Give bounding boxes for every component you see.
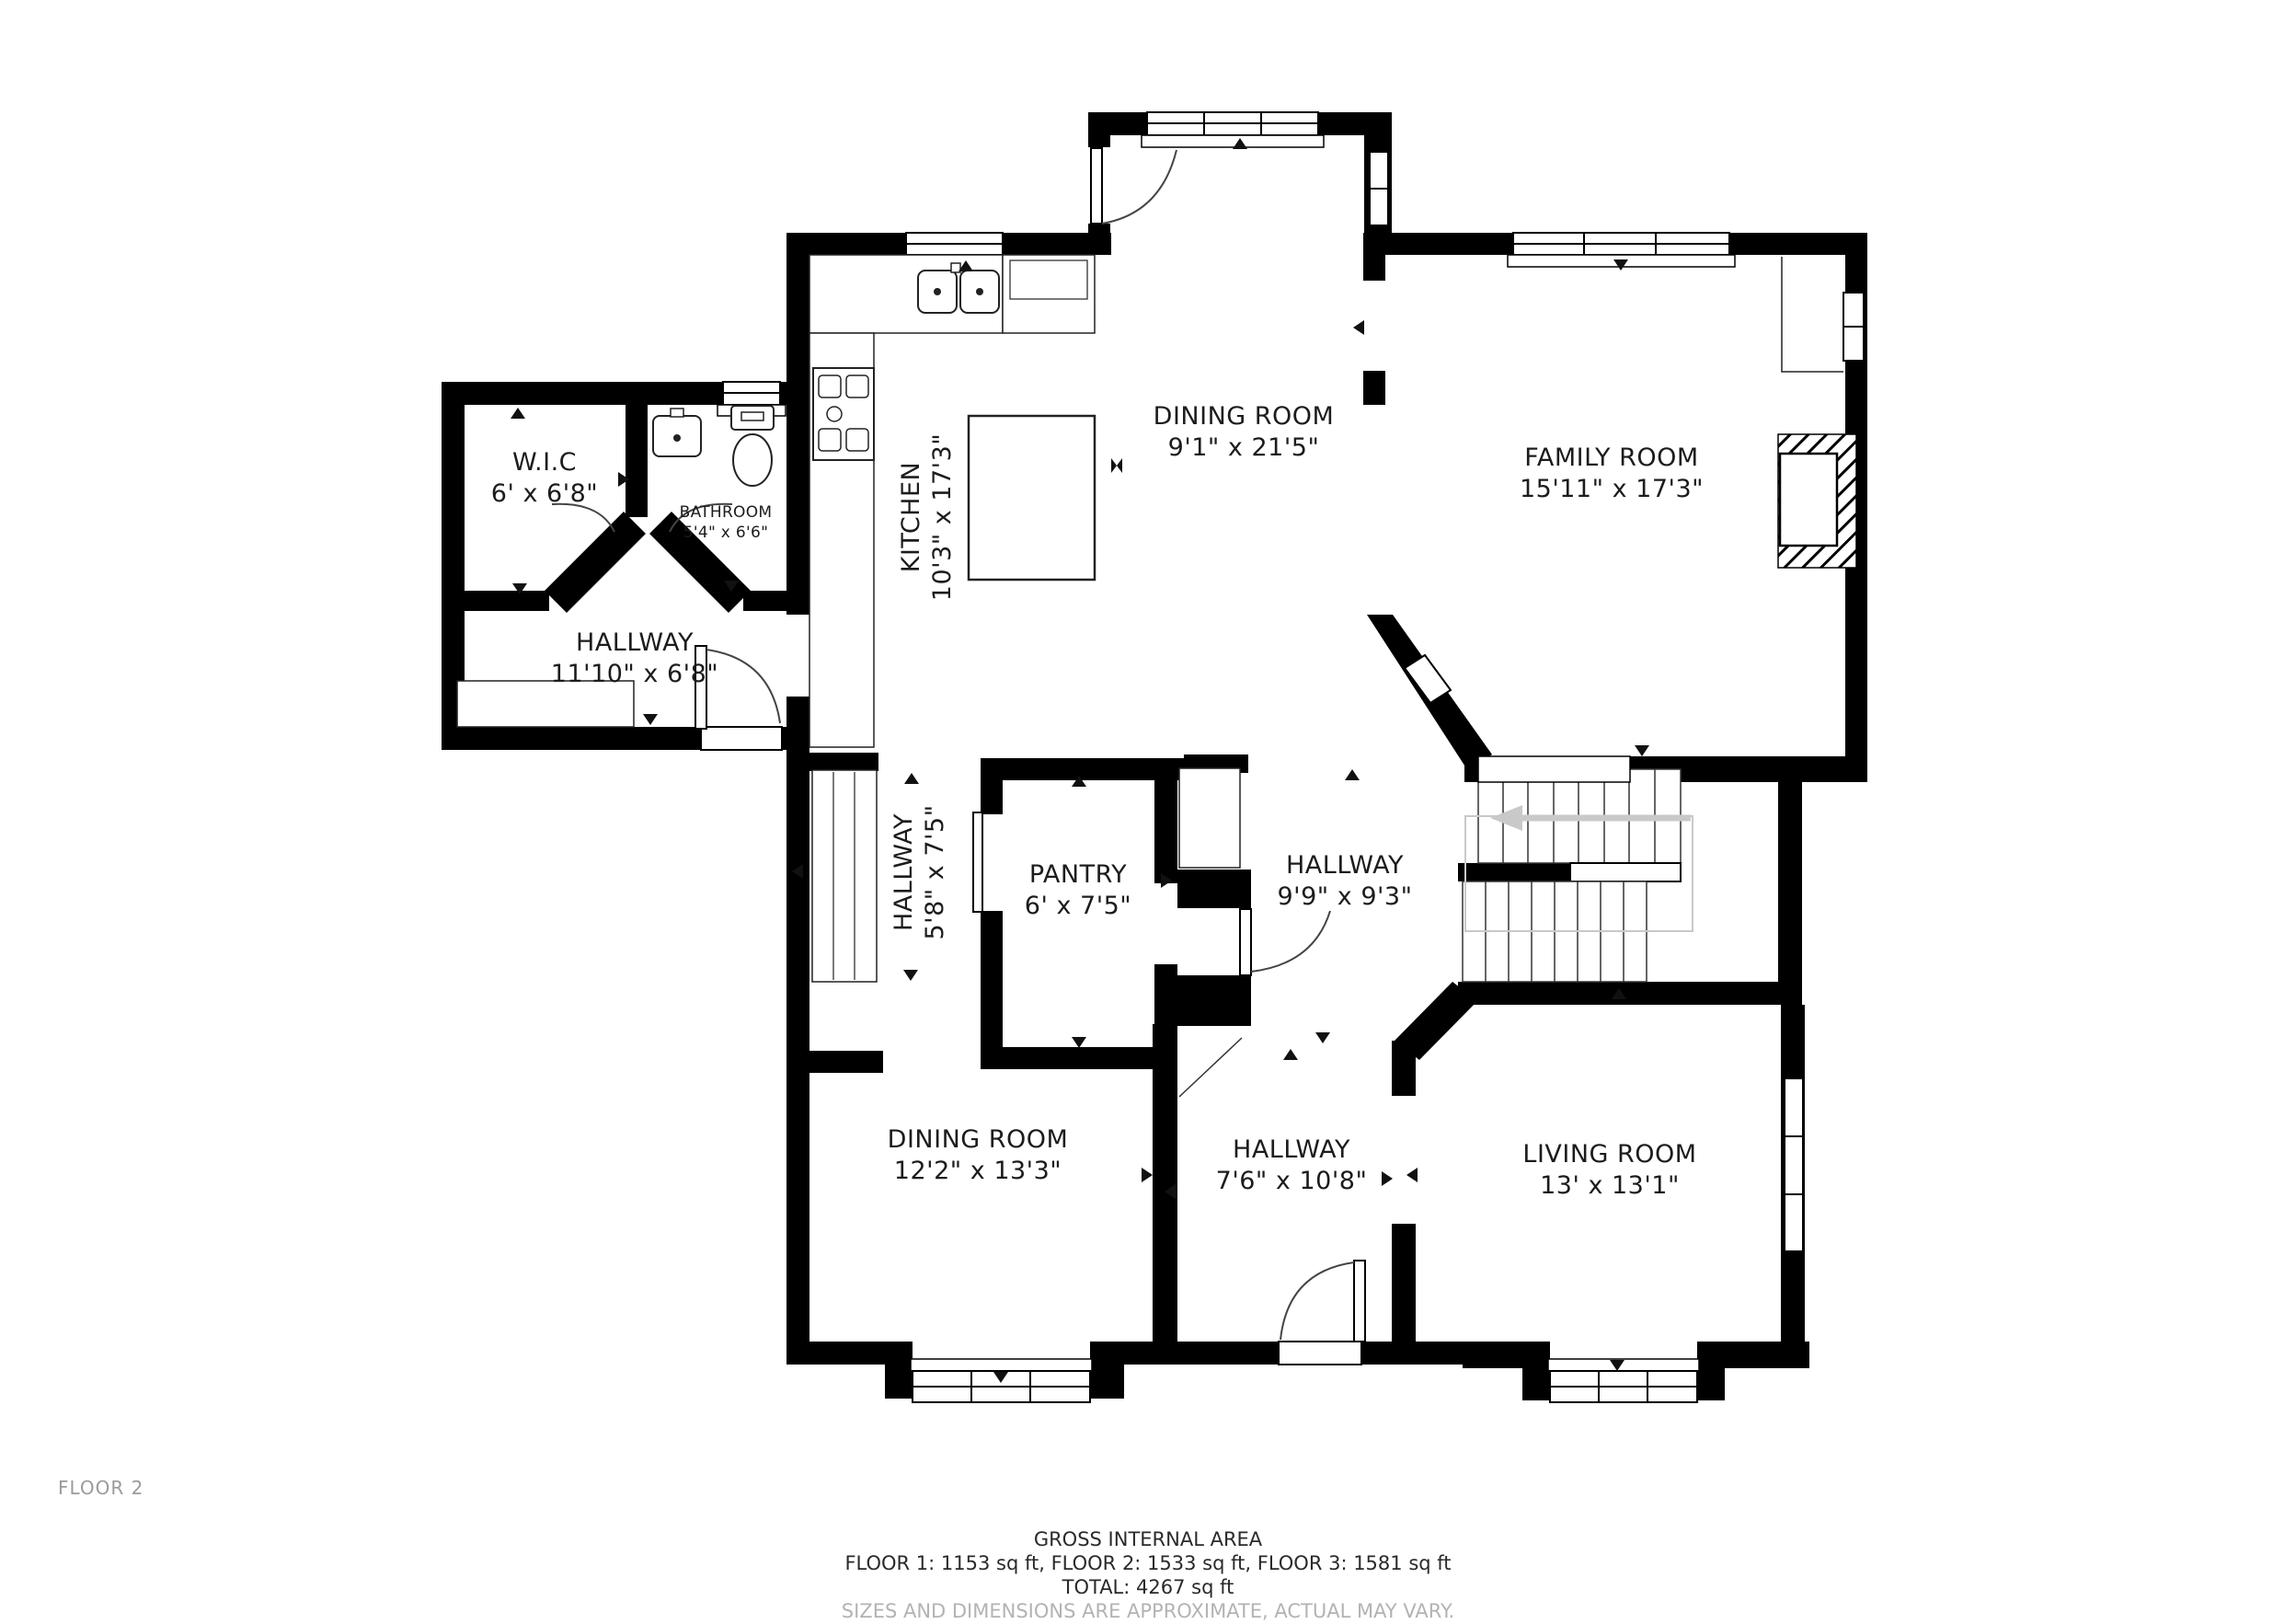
- room-dims: 5'4" x 6'6": [680, 523, 773, 543]
- room-name: HALLWAY: [551, 628, 718, 659]
- room-dims: 12'2" x 13'3": [888, 1156, 1069, 1187]
- room-dims: 6' x 6'8": [491, 478, 598, 510]
- room-label-hallway-center-left: HALLWAY 5'8" x 7'5": [889, 804, 951, 939]
- room-dims: 11'10" x 6'8": [551, 659, 718, 690]
- footer: GROSS INTERNAL AREA FLOOR 1: 1153 sq ft,…: [0, 1527, 2296, 1623]
- family-passage: [1478, 756, 1630, 782]
- room-name: HALLWAY: [889, 804, 920, 939]
- staircase: [1179, 769, 1693, 1097]
- center-door-leaf: [1240, 909, 1251, 975]
- room-label-dining-bottom: DINING ROOM 12'2" x 13'3": [888, 1124, 1069, 1187]
- room-name: DINING ROOM: [1154, 401, 1335, 432]
- room-dims: 15'11" x 17'3": [1520, 474, 1704, 505]
- room-label-hallway-upper-left: HALLWAY 11'10" x 6'8": [551, 628, 718, 690]
- stove-icon: [813, 368, 874, 460]
- door-sill: [1279, 1342, 1361, 1365]
- room-name: LIVING ROOM: [1522, 1139, 1696, 1170]
- room-label-hallway-center: HALLWAY 9'9" x 9'3": [1277, 850, 1412, 913]
- room-dims: 5'8" x 7'5": [920, 804, 951, 939]
- room-label-living: LIVING ROOM 13' x 13'1": [1522, 1139, 1696, 1202]
- room-name: PANTRY: [1025, 859, 1131, 891]
- room-dims: 9'9" x 9'3": [1277, 881, 1412, 913]
- tall-closet: [812, 770, 877, 982]
- nook-line: [1782, 257, 1843, 372]
- pantry-pocket-door: [973, 812, 982, 912]
- footer-title: GROSS INTERNAL AREA: [0, 1527, 2296, 1551]
- room-dims: 9'1" x 21'5": [1154, 432, 1335, 464]
- room-dims: 6' x 7'5": [1025, 891, 1131, 922]
- room-name: DINING ROOM: [888, 1124, 1069, 1156]
- room-name: HALLWAY: [1277, 850, 1412, 881]
- room-dims: 7'6" x 10'8": [1216, 1166, 1368, 1197]
- bottom-door-arc: [1280, 1262, 1354, 1340]
- bathroom-sink-icon: [653, 409, 701, 456]
- room-name: HALLWAY: [1216, 1134, 1368, 1166]
- center-door-arc: [1251, 911, 1330, 972]
- room-name: KITCHEN: [896, 433, 927, 601]
- hall-niche: [1179, 768, 1240, 868]
- room-label-dining-top: DINING ROOM 9'1" x 21'5": [1154, 401, 1335, 464]
- room-label-wic: W.I.C 6' x 6'8": [491, 447, 598, 510]
- room-label-kitchen: KITCHEN 10'3" x 17'3": [896, 433, 959, 601]
- room-dims: 10'3" x 17'3": [927, 433, 959, 601]
- room-name: FAMILY ROOM: [1520, 443, 1704, 474]
- floorplan-page: W.I.C 6' x 6'8" BATHROOM 5'4" x 6'6" HAL…: [0, 0, 2296, 1624]
- entry-door-arc: [1102, 150, 1177, 224]
- footer-floor-areas: FLOOR 1: 1153 sq ft, FLOOR 2: 1533 sq ft…: [0, 1551, 2296, 1575]
- room-label-family: FAMILY ROOM 15'11" x 17'3": [1520, 443, 1704, 505]
- bottom-door-leaf: [1354, 1261, 1365, 1342]
- kitchen-island: [969, 416, 1095, 580]
- floor-plan: [0, 0, 2296, 1624]
- under-stair-line: [1179, 1038, 1242, 1097]
- footer-total-area: TOTAL: 4267 sq ft: [0, 1575, 2296, 1599]
- floor-label: FLOOR 2: [58, 1477, 143, 1499]
- room-label-pantry: PANTRY 6' x 7'5": [1025, 859, 1131, 922]
- room-label-bathroom: BATHROOM 5'4" x 6'6": [680, 502, 773, 543]
- room-name: W.I.C: [491, 447, 598, 478]
- room-dims: 13' x 13'1": [1522, 1170, 1696, 1202]
- walls: [442, 112, 1867, 1400]
- room-name: BATHROOM: [680, 502, 773, 523]
- entry-door-leaf: [1091, 148, 1102, 224]
- fireplace-icon: [1778, 434, 1856, 568]
- door-sill: [701, 727, 782, 750]
- room-label-hallway-bottom: HALLWAY 7'6" x 10'8": [1216, 1134, 1368, 1197]
- footer-disclaimer: SIZES AND DIMENSIONS ARE APPROXIMATE, AC…: [0, 1599, 2296, 1623]
- toilet-icon: [731, 406, 774, 486]
